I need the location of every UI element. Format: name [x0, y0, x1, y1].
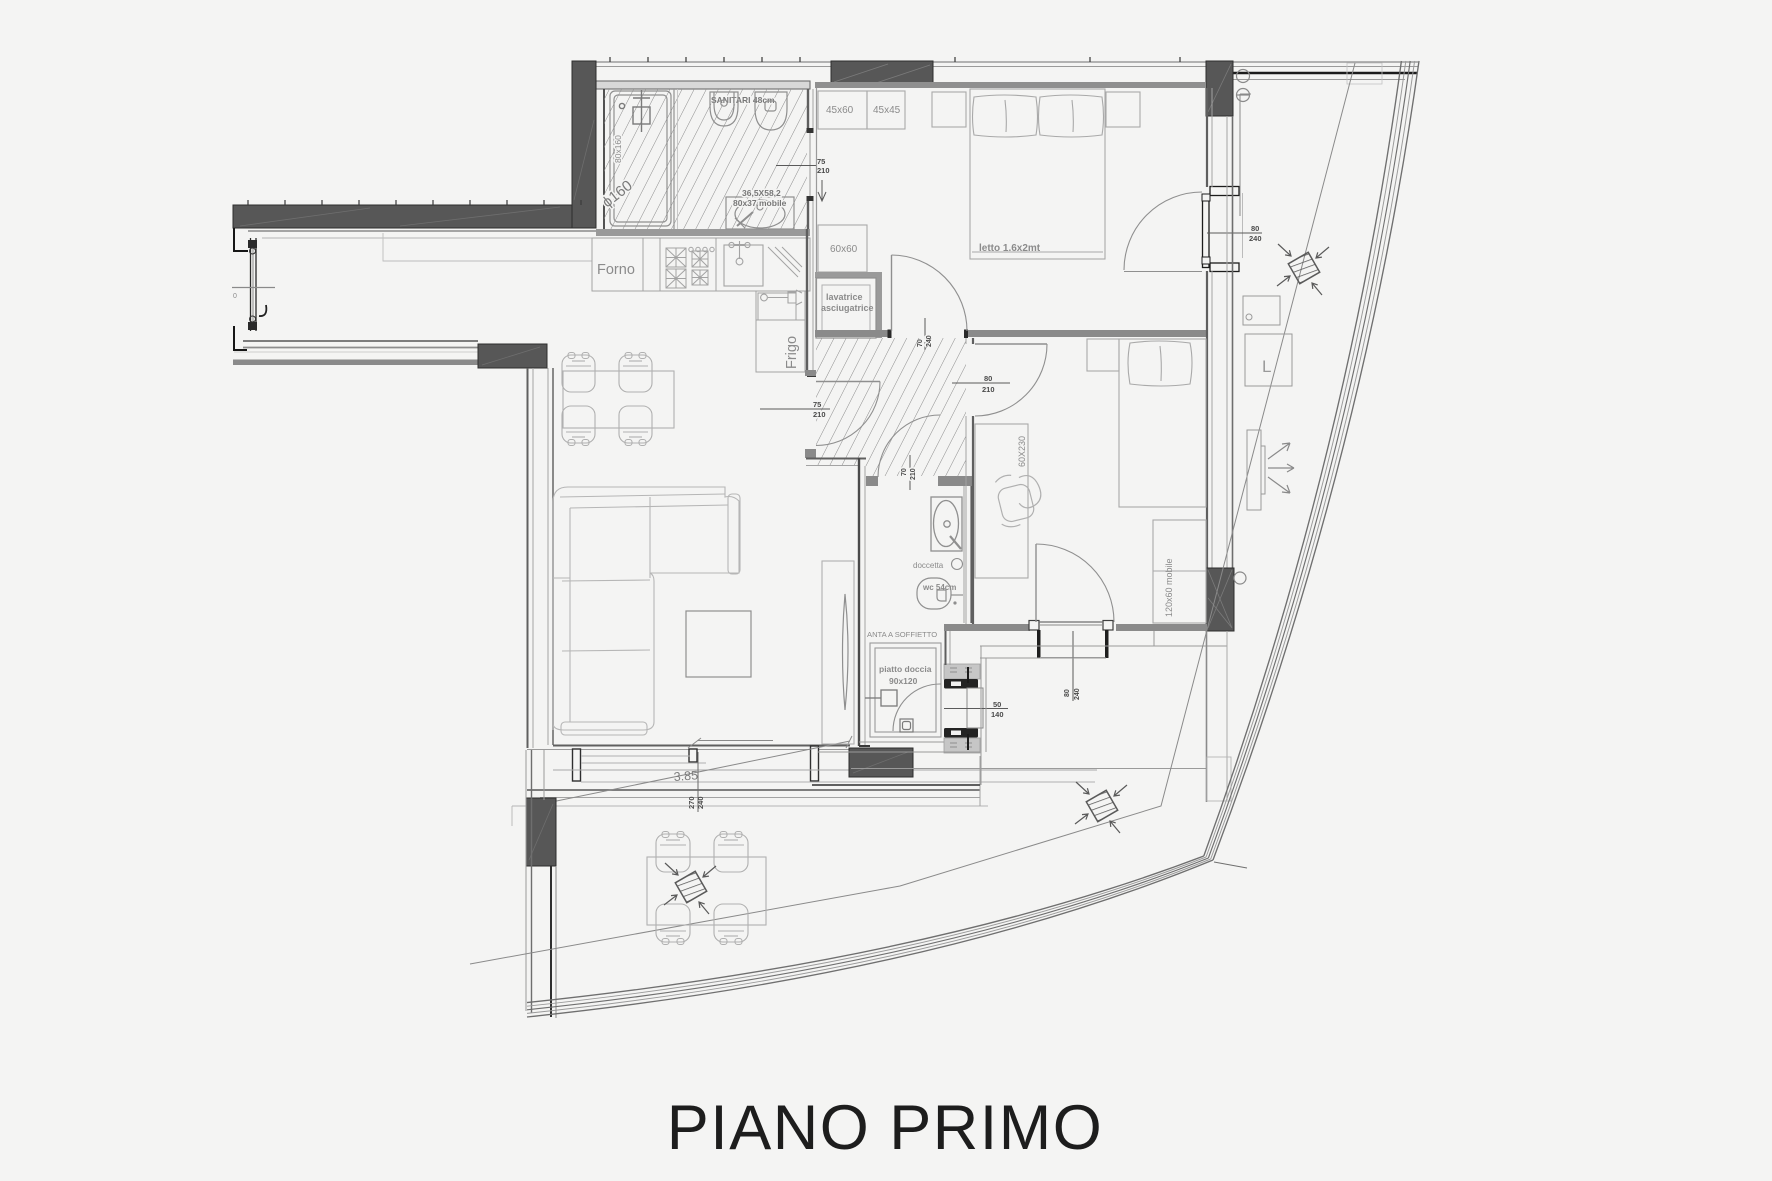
svg-text:Frigo: Frigo: [784, 336, 800, 369]
svg-text:letto 1.6x2mt: letto 1.6x2mt: [979, 243, 1041, 254]
svg-text:L: L: [1262, 357, 1271, 376]
svg-text:75: 75: [813, 400, 821, 409]
svg-text:60x60: 60x60: [830, 244, 858, 255]
svg-text:45x45: 45x45: [873, 105, 901, 116]
svg-text:3.85: 3.85: [673, 768, 698, 784]
svg-text:80x160: 80x160: [613, 135, 623, 163]
svg-text:70: 70: [901, 468, 908, 476]
svg-text:240: 240: [1074, 688, 1081, 700]
svg-text:50: 50: [993, 700, 1001, 709]
svg-text:120x60 mobile: 120x60 mobile: [1164, 558, 1174, 617]
svg-text:45x60: 45x60: [826, 105, 854, 116]
svg-text:Forno: Forno: [597, 262, 635, 278]
svg-text:80: 80: [984, 374, 992, 383]
svg-text:36,5X58,2: 36,5X58,2: [742, 188, 781, 198]
svg-text:80: 80: [1251, 224, 1259, 233]
svg-text:210: 210: [813, 410, 826, 419]
svg-text:240: 240: [1249, 234, 1262, 243]
svg-text:PIANO PRIMO: PIANO PRIMO: [667, 1093, 1104, 1163]
svg-text:210: 210: [982, 385, 995, 394]
svg-text:270: 270: [687, 796, 696, 809]
svg-text:0: 0: [233, 293, 237, 300]
svg-text:140: 140: [991, 710, 1004, 719]
svg-text:ANTA A SOFFIETTO: ANTA A SOFFIETTO: [867, 630, 937, 639]
svg-text:lavatrice: lavatrice: [826, 292, 863, 302]
svg-text:210: 210: [817, 166, 830, 175]
svg-text:240: 240: [696, 796, 705, 809]
svg-text:asciugatrice: asciugatrice: [821, 303, 874, 313]
svg-text:75: 75: [817, 157, 825, 166]
svg-text:wc 54cm: wc 54cm: [922, 583, 956, 592]
svg-text:doccetta: doccetta: [913, 561, 944, 570]
svg-text:210: 210: [910, 468, 917, 480]
svg-text:80: 80: [1064, 689, 1071, 697]
svg-text:80x37 mobile: 80x37 mobile: [733, 198, 787, 208]
svg-text:60X230: 60X230: [1017, 436, 1027, 467]
svg-text:90x120: 90x120: [889, 676, 918, 686]
svg-text:piatto doccia: piatto doccia: [879, 664, 932, 674]
